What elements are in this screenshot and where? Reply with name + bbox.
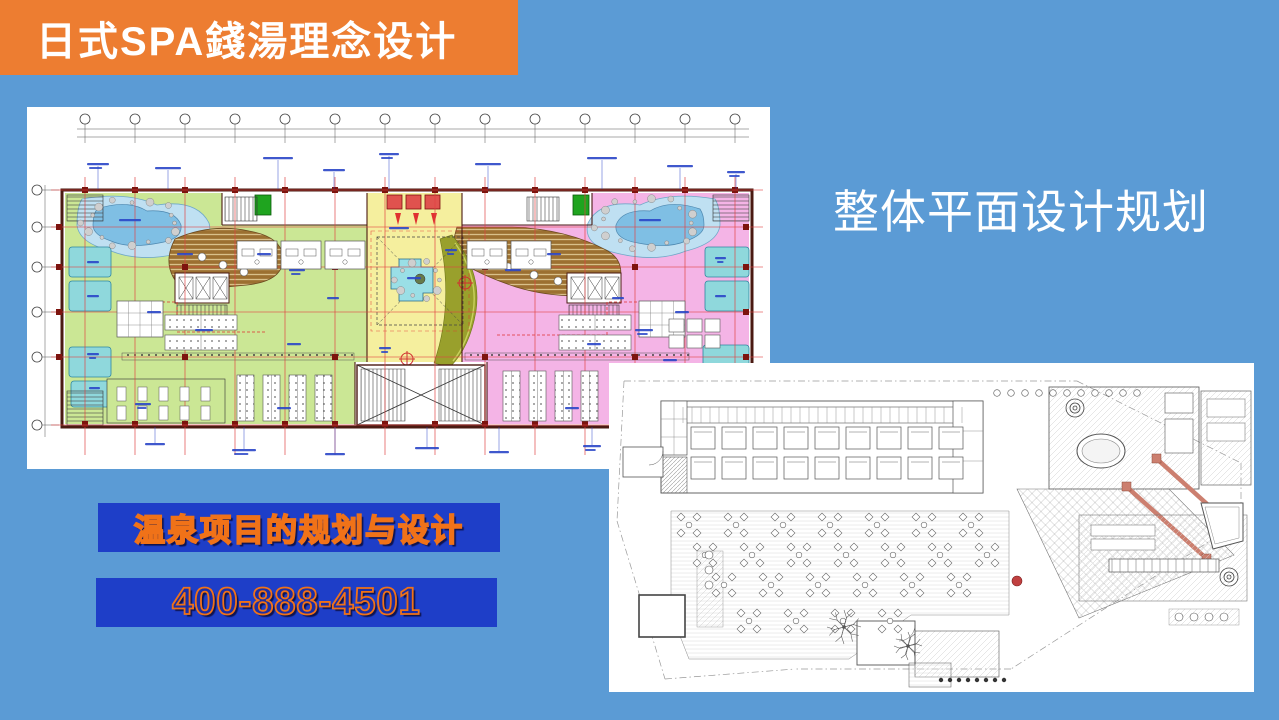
title-banner-text: 日式SPA錢湯理念设计 [36, 9, 457, 67]
slide: { "slide": { "background_color": "#5B9BD… [0, 0, 1279, 720]
promo-phone-text: 400-888-4501 [172, 581, 421, 624]
monochrome-site-plan-drawing [609, 363, 1254, 692]
section-title: 整体平面设计规划 [833, 176, 1209, 242]
title-banner: 日式SPA錢湯理念设计 [0, 0, 518, 75]
floor-plan-secondary-image [609, 363, 1254, 692]
promo-banner-project: 温泉项目的规划与设计 [98, 503, 500, 552]
promo-project-text: 温泉项目的规划与设计 [134, 505, 464, 550]
promo-banner-phone: 400-888-4501 [96, 578, 497, 627]
